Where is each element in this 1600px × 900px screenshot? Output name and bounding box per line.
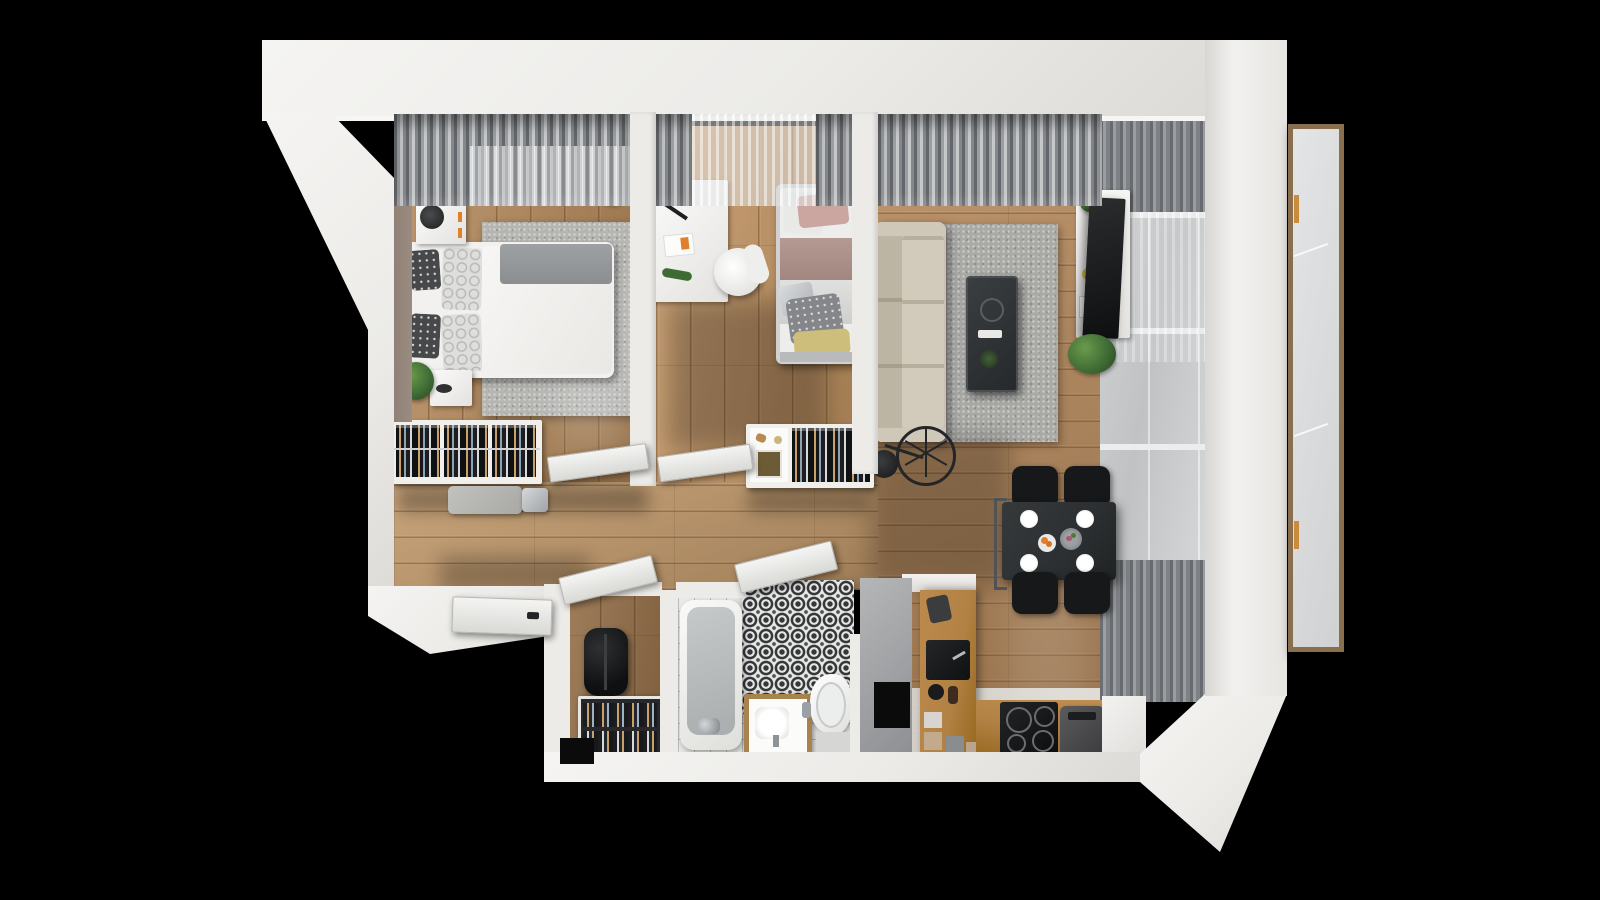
living-room-curtains xyxy=(878,114,1102,206)
kitchen-gray-wall xyxy=(860,578,912,758)
hanging-clothes xyxy=(396,425,440,477)
double-bed xyxy=(402,242,614,378)
exterior-corner-bottom-right xyxy=(1140,694,1290,854)
tv xyxy=(1082,197,1125,339)
appliance-niche xyxy=(874,682,910,728)
bathtub xyxy=(680,600,742,750)
pillow-dark xyxy=(409,313,441,359)
dining-chair xyxy=(1012,572,1058,614)
backpack xyxy=(584,628,628,696)
toilet-seat xyxy=(816,682,846,728)
floor-plant xyxy=(1068,334,1116,374)
jar xyxy=(755,433,767,444)
wall-closet-bathroom xyxy=(660,590,678,760)
toy-lizard xyxy=(661,267,692,281)
exterior-wall-bottom xyxy=(544,752,1146,782)
bedroom-curtains xyxy=(394,114,630,206)
machine-slot xyxy=(1068,712,1096,720)
wall-bedroom-kidsroom xyxy=(630,112,656,486)
serving-plate xyxy=(1060,528,1082,550)
kettle xyxy=(928,684,944,700)
single-bed xyxy=(776,184,856,364)
wall-kidsroom-living xyxy=(852,112,878,474)
backpack-strap xyxy=(604,634,607,690)
storage-box xyxy=(924,712,942,728)
hanging-clothes xyxy=(444,425,488,477)
pillow-light xyxy=(441,313,484,373)
sink-faucet xyxy=(773,735,779,747)
burner xyxy=(1007,734,1026,753)
wine-bottle xyxy=(948,686,958,704)
wall-niche xyxy=(560,738,594,764)
sofa-seat-cushions xyxy=(902,236,944,428)
toilet xyxy=(810,674,852,734)
bathtub-basin xyxy=(687,607,735,735)
kitchen-sink xyxy=(926,640,970,680)
kidsroom-curtains xyxy=(656,114,852,206)
curtain-panel xyxy=(656,114,692,206)
bath-faucet xyxy=(698,718,720,734)
counter-end-white xyxy=(1102,696,1146,758)
papers xyxy=(663,232,695,257)
decor-stone xyxy=(436,384,452,393)
exterior-wall-left xyxy=(262,112,396,616)
moka-pot xyxy=(926,594,953,624)
floor-plan-render xyxy=(0,0,1600,900)
clothes-rail xyxy=(394,448,540,450)
vanity-sink xyxy=(755,707,789,739)
bathroom-top-wall xyxy=(676,582,746,598)
table-lamp xyxy=(420,205,444,229)
paper-art xyxy=(680,237,689,250)
floor-lamp-wheel xyxy=(896,426,956,486)
nightstand xyxy=(416,202,466,244)
hanging-clothes xyxy=(492,425,536,477)
entrance-door xyxy=(451,596,552,635)
garnish xyxy=(1071,533,1076,538)
table-plant xyxy=(980,350,998,368)
sofa-back-cushions xyxy=(874,234,902,430)
induction-cooktop xyxy=(1000,702,1058,756)
plate xyxy=(1020,510,1038,528)
pillow-light xyxy=(441,247,483,310)
door-handle xyxy=(1294,521,1299,549)
burner xyxy=(1006,707,1032,733)
drawer-handle xyxy=(458,212,462,222)
pillow-dark xyxy=(409,249,442,291)
balcony-door-panel xyxy=(1288,124,1344,652)
blanket-gray xyxy=(500,244,612,284)
bedroom-sheer-curtain xyxy=(470,146,630,206)
remote xyxy=(978,330,1002,338)
coffee-table xyxy=(966,276,1018,392)
shadow xyxy=(748,490,868,512)
burner xyxy=(1034,706,1055,727)
vacuum-appliance xyxy=(522,488,548,512)
burner xyxy=(1032,730,1054,752)
table-frame-leg xyxy=(994,498,1007,590)
terrarium-box xyxy=(756,450,782,478)
decor-ring xyxy=(980,298,1004,322)
star-ornament xyxy=(774,436,782,444)
shoes-row xyxy=(583,703,657,727)
curtain-panel xyxy=(816,114,852,206)
nightstand xyxy=(430,370,472,406)
blanket-mauve xyxy=(780,238,852,280)
glass-reflection xyxy=(1294,243,1329,257)
open-wardrobe-rack xyxy=(392,420,542,484)
exterior-wall-top xyxy=(262,40,1238,121)
bench-ottoman xyxy=(448,486,522,514)
drawer-handle xyxy=(458,228,462,238)
plate xyxy=(1020,554,1038,572)
dining-chair xyxy=(1064,572,1110,614)
footboard xyxy=(780,352,852,362)
faucet xyxy=(952,651,966,661)
plate xyxy=(1076,510,1094,528)
fruit xyxy=(1046,541,1052,547)
window-blinds-bottom xyxy=(1100,560,1206,702)
fruit-plate xyxy=(1038,534,1056,552)
door-handle xyxy=(1294,195,1299,223)
sofa-armrest xyxy=(874,222,946,236)
dining-table xyxy=(1002,502,1116,580)
sofa xyxy=(874,222,946,442)
plate xyxy=(1076,554,1094,572)
toilet-brush xyxy=(802,702,811,718)
storage-box xyxy=(924,732,942,750)
glass-reflection xyxy=(1294,423,1329,437)
shelf-decor xyxy=(750,428,788,482)
entrance-door-handle xyxy=(527,612,539,619)
sheer-panel xyxy=(692,114,816,206)
exterior-wall-right xyxy=(1205,40,1287,696)
